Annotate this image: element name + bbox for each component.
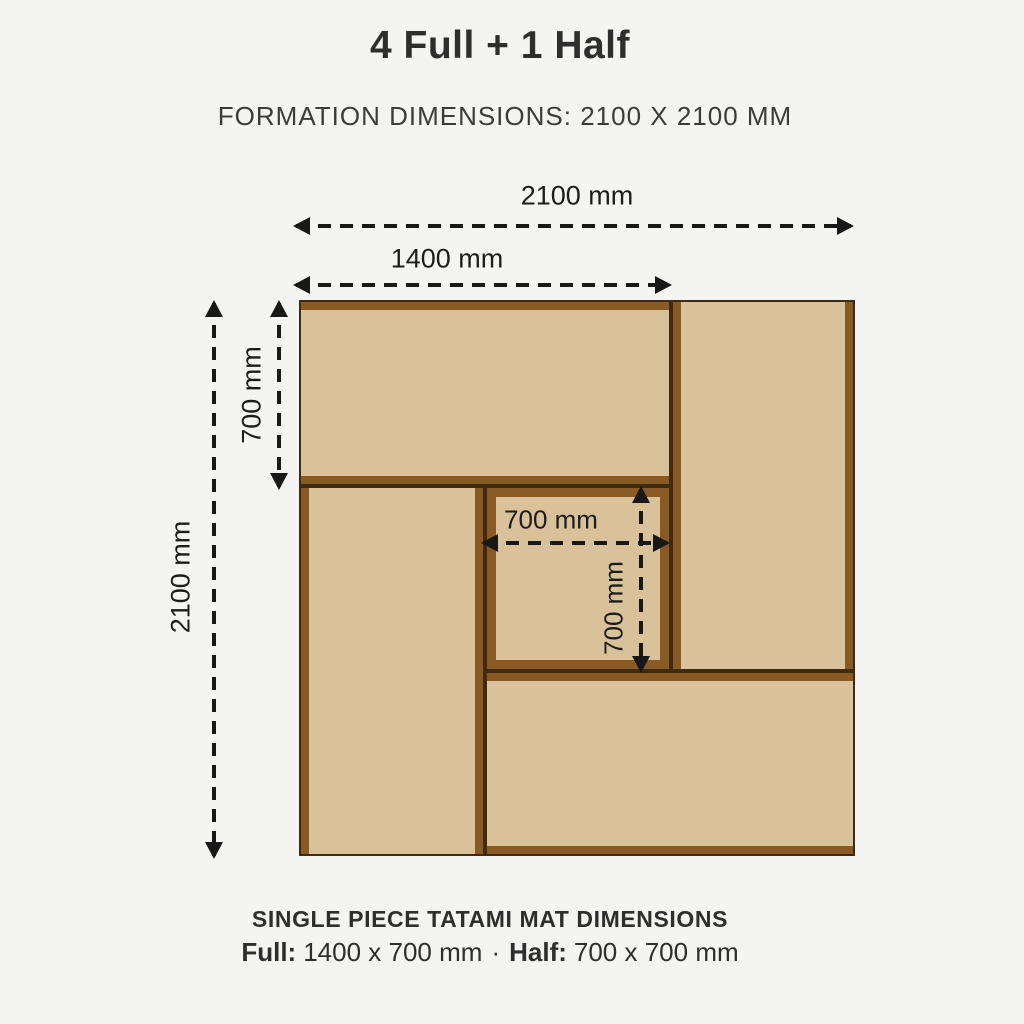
- half-mat-width-label: 700 mm: [504, 505, 598, 536]
- size-separator: ·: [491, 937, 500, 967]
- full-mat-width-arrow: [277, 303, 281, 487]
- tatami-formation-infographic: 4 Full + 1 Half FORMATION DIMENSIONS: 21…: [0, 0, 1024, 1024]
- formation-height-arrow: [212, 303, 216, 856]
- formation-width-arrow: [296, 224, 851, 228]
- full-size-label: Full:: [241, 937, 296, 967]
- full-mat-bottom-left: [299, 486, 485, 856]
- single-piece-dimensions-heading: SINGLE PIECE TATAMI MAT DIMENSIONS: [0, 906, 980, 933]
- half-mat-height-label: 700 mm: [599, 561, 630, 655]
- full-mat-top-right: [671, 300, 855, 671]
- full-mat-width-label: 700 mm: [237, 346, 268, 444]
- full-mat-bottom-right: [485, 671, 855, 856]
- half-mat-height-arrow: [639, 489, 643, 670]
- full-size-value: 1400 x 700 mm: [303, 937, 482, 967]
- page-title: 4 Full + 1 Half: [0, 24, 1000, 68]
- full-mat-length-label: 1400 mm: [391, 244, 504, 275]
- full-mat-top-left: [299, 300, 671, 486]
- single-piece-dimensions-values: Full:1400 x 700 mm·Half:700 x 700 mm: [0, 937, 980, 968]
- formation-dimensions-subtitle: FORMATION DIMENSIONS: 2100 X 2100 MM: [0, 101, 1010, 132]
- full-mat-length-arrow: [296, 283, 669, 287]
- formation-width-label: 2100 mm: [521, 181, 634, 212]
- formation-height-label: 2100 mm: [166, 521, 197, 634]
- half-size-label: Half:: [509, 937, 567, 967]
- half-size-value: 700 x 700 mm: [574, 937, 739, 967]
